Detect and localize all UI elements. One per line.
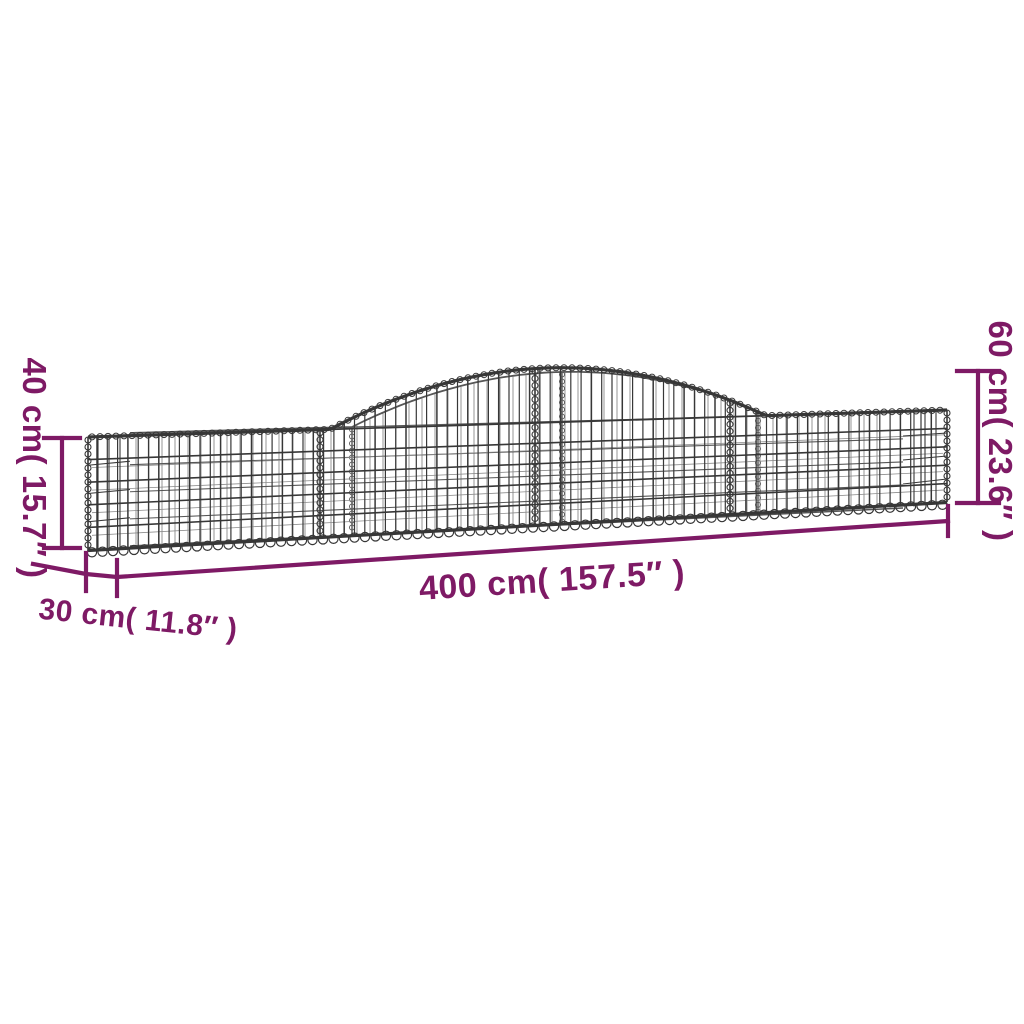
dimension-lines <box>33 371 999 596</box>
dimension-label-peak-height: 60 cm( 23.6″ ) <box>981 321 1019 542</box>
front-wall-mesh <box>88 369 947 549</box>
dimension-label-end-height: 40 cm( 15.7″ ) <box>15 358 53 579</box>
product-dimension-diagram: 40 cm( 15.7″ ) 60 cm( 23.6″ ) 400 cm( 15… <box>0 0 1024 1024</box>
gabion-basket-wireframe <box>0 0 1024 1024</box>
